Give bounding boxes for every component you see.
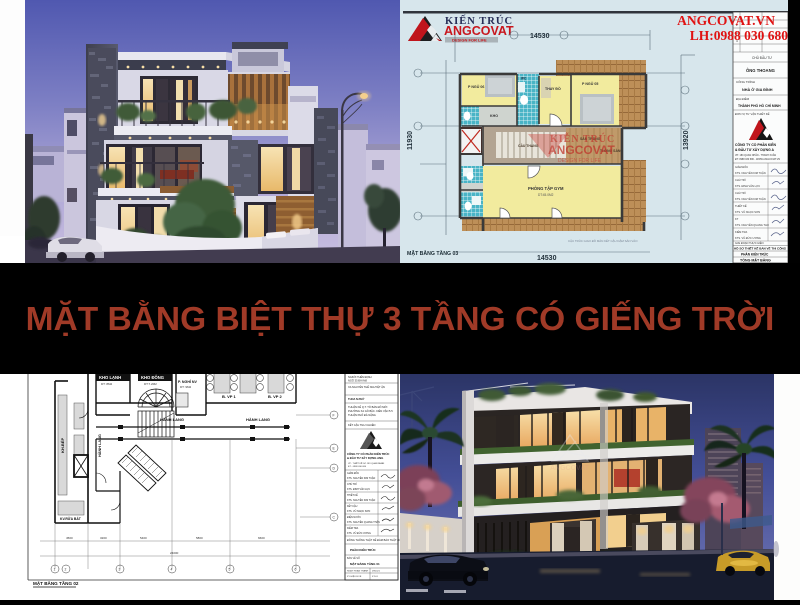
svg-text:6: 6 (295, 568, 297, 572)
svg-text:& ĐẦU TƯ XÂY DỰNG A: & ĐẦU TƯ XÂY DỰNG A (735, 147, 775, 152)
svg-text:5: 5 (229, 568, 231, 572)
svg-text:3200: 3200 (100, 536, 107, 540)
svg-text:MẶT BẰNG TẦNG 02: MẶT BẰNG TẦNG 02 (33, 579, 79, 586)
svg-text:F: F (333, 414, 335, 418)
svg-text:KẾT CẬU: KẾT CẬU (347, 505, 358, 508)
svg-text:BẢN VẼ SỐ: BẢN VẼ SỐ (347, 557, 360, 560)
svg-text:CÔNG TRÌNH: CÔNG TRÌNH (736, 79, 755, 84)
svg-text:KHO: KHO (490, 114, 498, 118)
svg-text:KIỂM TRA: KIỂM TRA (347, 527, 359, 530)
svg-text:CÔNG TY CỔ PHẦN KIẾN: CÔNG TY CỔ PHẦN KIẾN (735, 142, 777, 147)
svg-text:CHỦ TRÌ: CHỦ TRÌ (347, 483, 357, 486)
svg-text:KTS. ĐINH VĂN LỰC: KTS. ĐINH VĂN LỰC (735, 184, 760, 188)
svg-text:PHÒNG TẬP GYM: PHÒNG TẬP GYM (528, 186, 564, 191)
svg-text:LH:0988 030 680: LH:0988 030 680 (690, 28, 789, 43)
svg-text:KTS. NGUYỄN QUANG THẬN: KTS. NGUYỄN QUANG THẬN (347, 521, 380, 524)
svg-text:VP : THIẾT KẾ SỐ 183 QUAN NHÂN: VP : THIẾT KẾ SỐ 183 QUAN NHÂN (348, 462, 385, 465)
svg-text:TỖNG MẶT BẰNG: TỖNG MẶT BẰNG (740, 258, 771, 263)
svg-text:ĐỊA ĐIỂM: ĐỊA ĐIỂM (736, 96, 750, 101)
svg-text:DT:7.2M2: DT:7.2M2 (144, 382, 157, 386)
svg-text:ĐƠN VỊ TƯ VẬN THIẾT KẾ: ĐƠN VỊ TƯ VẬN THIẾT KẾ (735, 111, 770, 116)
svg-text:09/2021: 09/2021 (372, 571, 381, 573)
svg-text:11930: 11930 (407, 131, 414, 150)
svg-text:DESIGN FOR LIFE: DESIGN FOR LIFE (558, 158, 602, 164)
svg-text:13920: 13920 (683, 130, 690, 150)
svg-text:MẶT BẰNG TẦNG 01: MẶT BẰNG TẦNG 01 (350, 561, 380, 566)
svg-text:24000: 24000 (170, 551, 179, 555)
svg-text:4: 4 (171, 568, 173, 572)
svg-text:P NGỦ 05: P NGỦ 05 (582, 81, 598, 86)
svg-text:6600: 6600 (258, 536, 265, 540)
svg-text:P. NGHỈ NV: P. NGHỈ NV (178, 379, 198, 384)
svg-text:B. VP 2: B. VP 2 (268, 394, 282, 399)
svg-text:ANGCOVAT: ANGCOVAT (548, 143, 616, 157)
svg-text:5800: 5800 (196, 536, 203, 540)
svg-text:KTS. NGUYỄN KIM TUẬN: KTS. NGUYỄN KIM TUẬN (347, 499, 376, 502)
svg-text:KÝ HIỆU B.VẼ: KÝ HIỆU B.VẼ (347, 575, 362, 578)
svg-text:PHẦN KIẾN TRÚC: PHẦN KIẾN TRÚC (350, 547, 377, 552)
svg-text:ĐT: 0988 030 680 - WWW.ANGCOVA: ĐT: 0988 030 680 - WWW.ANGCOVAT.VN (735, 158, 780, 161)
svg-text:THAY ĐỒ: THAY ĐỒ (545, 86, 561, 91)
svg-text:14530: 14530 (530, 33, 550, 40)
svg-text:THIẾT KẾ: THIẾT KẾ (347, 494, 358, 497)
svg-text:HÀNH LANG: HÀNH LANG (160, 417, 184, 422)
svg-text:ANGCOVAT: ANGCOVAT (550, 465, 590, 472)
svg-text:DT: 9M2: DT: 9M2 (180, 385, 192, 389)
svg-text:3: 3 (119, 568, 121, 572)
svg-text:HÀNH LANG: HÀNH LANG (97, 434, 102, 457)
svg-text:KTS. VŨ NGỌC SƠN: KTS. VŨ NGỌC SƠN (347, 510, 370, 513)
svg-text:B. VP 1: B. VP 1 (222, 394, 236, 399)
svg-text:KV.RỬA BÁT: KV.RỬA BÁT (60, 516, 82, 521)
svg-text:DESIGN FOR LIFE: DESIGN FOR LIFE (452, 38, 487, 43)
svg-text:CHỦ ĐẦU TƯ: CHỦ ĐẦU TƯ (752, 55, 772, 60)
svg-text:CẬU TRÚC GIAO ĐỒ MÀN KỄT CẬU D: CẬU TRÚC GIAO ĐỒ MÀN KỄT CẬU DẬM SÀN VÀO (568, 238, 638, 243)
svg-text:ĐIỆN NƯỚC: ĐIỆN NƯỚC (347, 516, 361, 519)
svg-text:5400: 5400 (140, 536, 147, 540)
svg-text:MẶT BẰNG TẦNG 03: MẶT BẰNG TẦNG 03 (407, 249, 458, 257)
svg-text:2: 2 (65, 568, 67, 572)
svg-text:ANGCOVAT: ANGCOVAT (444, 24, 514, 38)
svg-text:DT:45.0M2: DT:45.0M2 (538, 193, 554, 197)
svg-text:CẦU THANG: CẦU THANG (518, 144, 539, 148)
svg-text:4500: 4500 (66, 536, 73, 540)
svg-text:P NGỦ 06: P NGỦ 06 (468, 84, 484, 89)
svg-text:NGÀY HOÀN THÀNH: NGÀY HOÀN THÀNH (347, 570, 369, 573)
svg-text:KT: KT (735, 217, 739, 221)
svg-text:14530: 14530 (537, 255, 557, 262)
svg-text:KTS. ĐINH VĂN LỰC: KTS. ĐINH VĂN LỰC (347, 488, 370, 491)
svg-text:ÔNG THOANG: ÔNG THOANG (746, 68, 775, 73)
svg-text:HÀNH LANG: HÀNH LANG (246, 417, 270, 422)
svg-text:HỒ SƠ THIẾT KẾ BẢN VẼ THI CÔNG: HỒ SƠ THIẾT KẾ BẢN VẼ THI CÔNG (734, 246, 787, 251)
svg-text:KT-01: KT-01 (372, 576, 379, 578)
svg-text:KHO ĐÔNG: KHO ĐÔNG (141, 375, 164, 380)
svg-text:& ĐẦU TƯ XÂY DỰNG ANG: & ĐẦU TƯ XÂY DỰNG ANG (347, 455, 383, 460)
svg-text:KH.BẾP: KH.BẾP (60, 438, 65, 453)
svg-text:DT: 8M2: DT: 8M2 (101, 382, 113, 386)
svg-text:WC: WC (521, 77, 527, 81)
svg-text:KTS. VŨ ĐỨC ƯƠNG: KTS. VŨ ĐỨC ƯƠNG (347, 532, 371, 535)
svg-text:ANGCOVAT.VN: ANGCOVAT.VN (677, 13, 775, 28)
svg-text:1: 1 (54, 568, 56, 572)
svg-text:KHO LẠNH: KHO LẠNH (99, 375, 121, 380)
svg-text:THÀNH PHỐ HỒ CHÍ MINH: THÀNH PHỐ HỒ CHÍ MINH (738, 103, 781, 108)
svg-text:ĐT : 0988 030 680: ĐT : 0988 030 680 (348, 466, 367, 468)
svg-text:PHẦN KIẾN TRÚC: PHẦN KIẾN TRÚC (741, 252, 769, 257)
svg-text:GIÁM ĐỐC: GIÁM ĐỐC (347, 472, 359, 475)
svg-text:KTS. NGUYỄN KIM TUẬN: KTS. NGUYỄN KIM TUẬN (347, 477, 376, 480)
svg-text:NHÀ Ở GIA ĐÌNH: NHÀ Ở GIA ĐÌNH (742, 87, 773, 92)
svg-text:VP: 183 QUAN NHÂN - THANH XUÂN: VP: 183 QUAN NHÂN - THANH XUÂN (735, 154, 776, 157)
